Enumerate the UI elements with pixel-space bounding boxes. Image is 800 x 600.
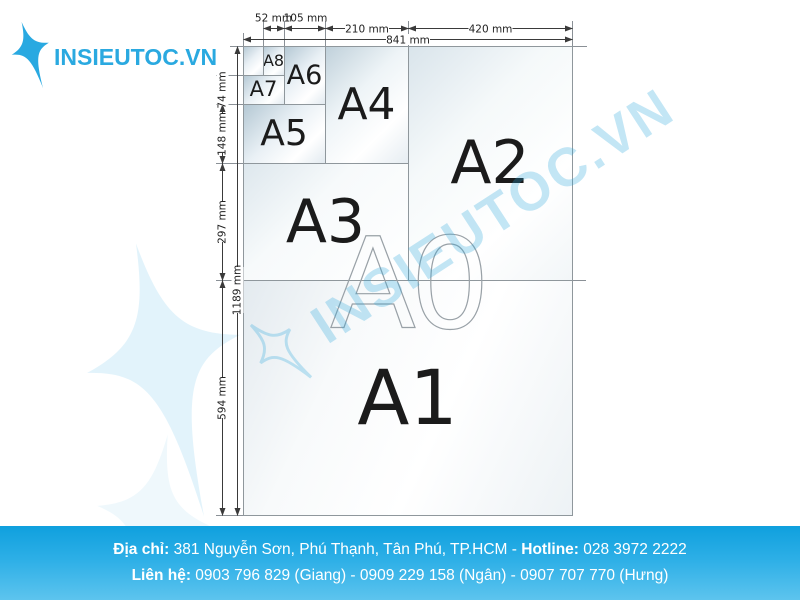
address-value: 381 Nguyễn Sơn, Phú Thạnh, Tân Phú, TP.H… bbox=[174, 541, 508, 558]
paper-box-a1: A1 bbox=[243, 280, 572, 516]
label-a2: A2 bbox=[450, 133, 529, 193]
label-a8: A8 bbox=[263, 53, 284, 69]
dim-148mm: 148 mm bbox=[217, 112, 229, 156]
footer-line-contact: Liên hệ: 0903 796 829 (Giang) - 0909 229… bbox=[0, 563, 800, 589]
dim-210mm: 210 mm bbox=[345, 24, 389, 36]
paper-box-a8: A8 bbox=[263, 46, 284, 75]
dim-74mm: 74 mm bbox=[217, 71, 229, 108]
dim-594mm: 594 mm bbox=[217, 376, 229, 420]
label-a6: A6 bbox=[287, 62, 323, 89]
footer: Địa chỉ: 381 Nguyễn Sơn, Phú Thạnh, Tân … bbox=[0, 526, 800, 600]
label-a5: A5 bbox=[260, 116, 308, 152]
paper-box-a2: A2 bbox=[408, 46, 572, 280]
label-a7: A7 bbox=[250, 79, 278, 100]
paper-box-a8-blank bbox=[243, 46, 263, 75]
hotline-number: 028 3972 2222 bbox=[583, 541, 686, 558]
logo: INSIEUTOC.VN bbox=[6, 18, 217, 96]
dim-1189mm: 1189 mm bbox=[232, 265, 244, 316]
hotline-label: Hotline: bbox=[521, 541, 579, 558]
paper-box-a3: A3 bbox=[243, 163, 408, 280]
label-a3: A3 bbox=[286, 192, 365, 252]
footer-dash: - bbox=[512, 541, 517, 558]
label-a4: A4 bbox=[337, 83, 395, 127]
logo-star-icon bbox=[0, 13, 70, 102]
dim-105mm: 105 mm bbox=[284, 13, 328, 25]
dim-297mm: 297 mm bbox=[217, 200, 229, 244]
paper-box-a7: A7 bbox=[243, 75, 284, 104]
footer-line-address: Địa chỉ: 381 Nguyễn Sơn, Phú Thạnh, Tân … bbox=[0, 537, 800, 563]
logo-text: INSIEUTOC.VN bbox=[54, 44, 217, 71]
page: INSIEUTOC.VN A8 A7 A6 A5 A4 A3 A2 A1 bbox=[0, 0, 800, 600]
contact-label: Liên hệ: bbox=[132, 567, 191, 584]
contact-numbers: 0903 796 829 (Giang) - 0909 229 158 (Ngâ… bbox=[195, 567, 668, 584]
dim-420mm: 420 mm bbox=[469, 24, 513, 36]
label-a1: A1 bbox=[357, 360, 457, 436]
paper-box-a4: A4 bbox=[325, 46, 408, 163]
paper-box-a6: A6 bbox=[284, 46, 325, 104]
address-label: Địa chỉ: bbox=[113, 541, 169, 558]
dim-841mm: 841 mm bbox=[386, 35, 430, 47]
dim-52mm: 52 mm bbox=[255, 13, 292, 25]
paper-box-a5: A5 bbox=[243, 104, 325, 163]
